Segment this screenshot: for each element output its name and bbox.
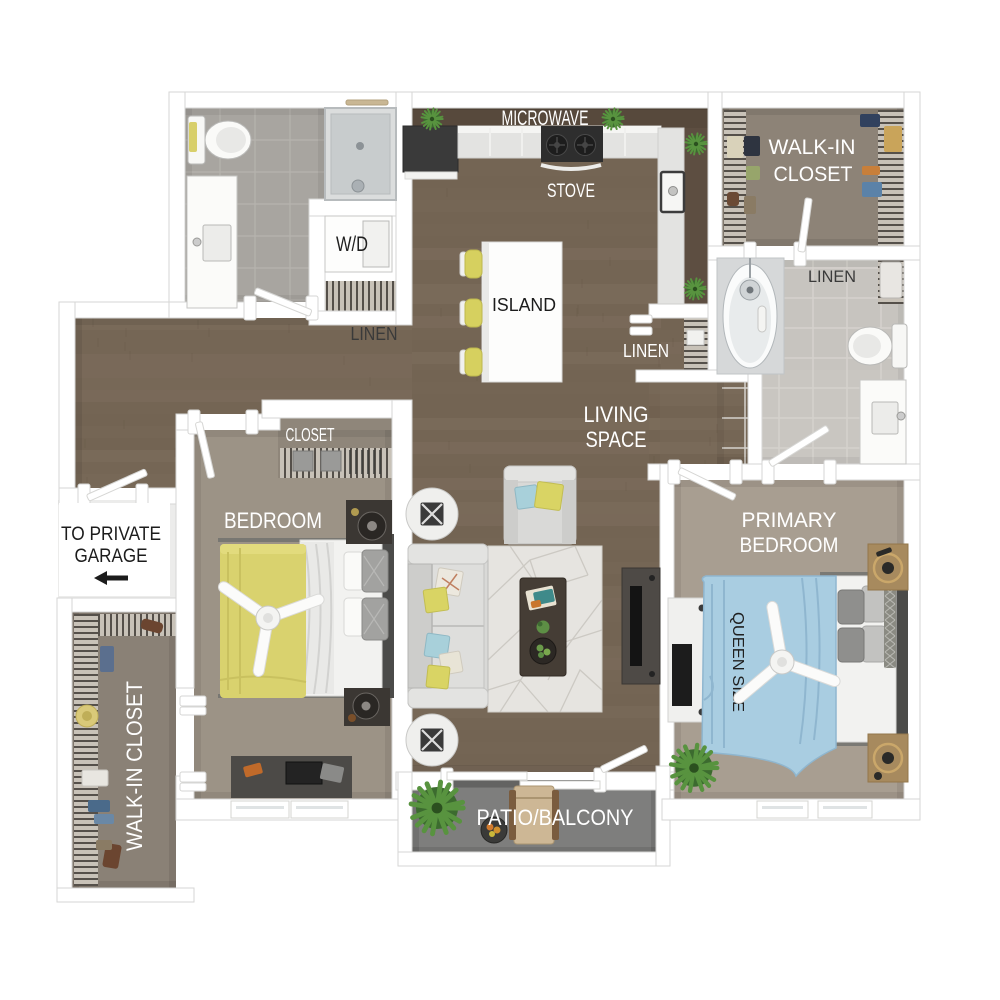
svg-text:WALK-IN CLOSET: WALK-IN CLOSET [122,681,147,851]
svg-text:LINEN: LINEN [351,324,398,344]
svg-text:LINEN: LINEN [808,267,856,286]
svg-text:GARAGE: GARAGE [75,546,148,567]
svg-text:TO PRIVATE: TO PRIVATE [61,524,161,545]
svg-text:LINEN: LINEN [623,341,669,361]
svg-text:PATIO/BALCONY: PATIO/BALCONY [477,805,634,830]
svg-text:ISLAND: ISLAND [492,295,556,315]
svg-text:PRIMARY: PRIMARY [742,509,837,532]
svg-text:WALK-IN: WALK-IN [769,136,856,159]
svg-text:CLOSET: CLOSET [774,163,853,186]
svg-text:CLOSET: CLOSET [286,425,335,445]
svg-text:W/D: W/D [336,233,368,256]
svg-text:MICROWAVE: MICROWAVE [502,107,589,130]
svg-text:BEDROOM: BEDROOM [224,508,322,533]
svg-text:SPACE: SPACE [586,427,647,452]
svg-text:LIVING: LIVING [584,402,649,427]
svg-text:BEDROOM: BEDROOM [740,534,839,557]
svg-text:STOVE: STOVE [547,181,595,202]
